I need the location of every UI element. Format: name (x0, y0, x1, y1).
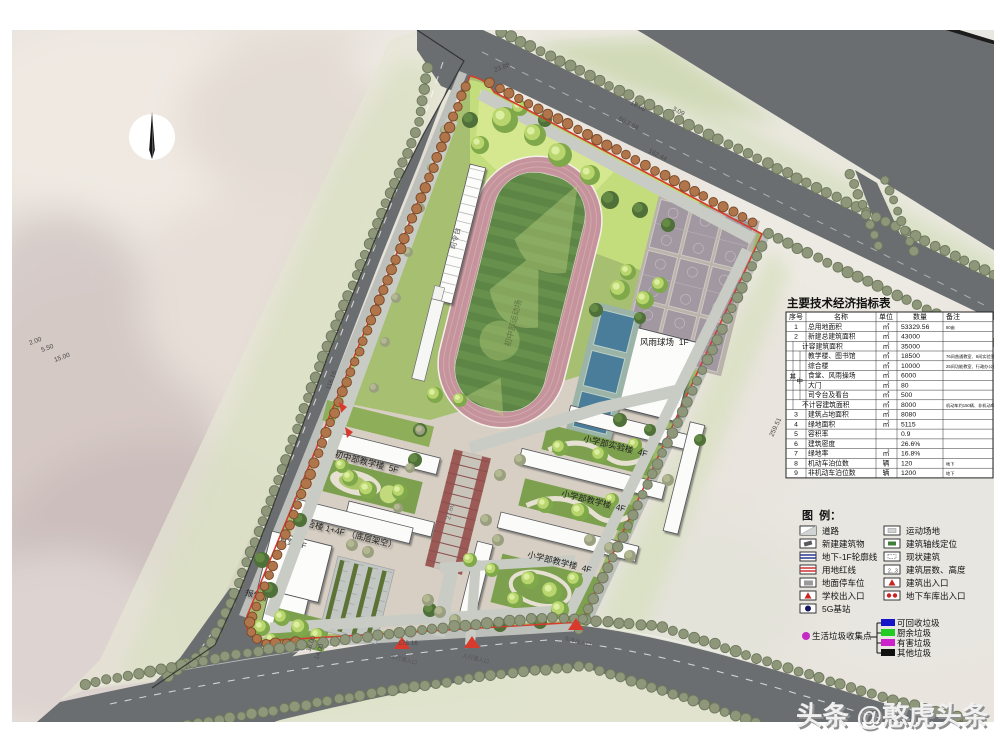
svg-text:其他垃圾: 其他垃圾 (897, 648, 932, 658)
svg-text:有害垃圾: 有害垃圾 (897, 638, 932, 648)
svg-text:名称: 名称 (834, 312, 848, 321)
svg-text:现状建筑: 现状建筑 (906, 552, 941, 562)
svg-text:3: 3 (794, 412, 798, 419)
svg-text:主要技术经济指标表: 主要技术经济指标表 (787, 296, 891, 310)
svg-text:7: 7 (794, 451, 798, 458)
svg-text:㎡: ㎡ (883, 322, 890, 331)
svg-text:新建建筑物: 新建建筑物 (822, 539, 865, 549)
svg-text:5: 5 (794, 431, 798, 438)
svg-text:地下: 地下 (946, 460, 954, 467)
svg-text:80亩: 80亩 (946, 324, 955, 331)
svg-text:㎡: ㎡ (883, 341, 890, 350)
svg-text:绿地面积: 绿地面积 (808, 419, 835, 428)
svg-text:容积率: 容积率 (808, 429, 829, 438)
svg-text:可回收垃圾: 可回收垃圾 (897, 618, 940, 628)
svg-text:地面停车位: 地面停车位 (822, 578, 865, 588)
svg-text:0.9: 0.9 (901, 431, 911, 438)
svg-text:2: 2 (794, 334, 798, 341)
svg-text:6: 6 (794, 441, 798, 448)
svg-text:㎡: ㎡ (883, 390, 890, 399)
svg-text:辆: 辆 (883, 468, 890, 477)
svg-text:1200: 1200 (901, 470, 916, 477)
svg-text:6000: 6000 (901, 373, 916, 380)
svg-text:43000: 43000 (901, 334, 920, 341)
svg-text:76间普通教室、8间实验室、1间报告厅: 76间普通教室、8间实验室、1间报告厅 (946, 353, 1000, 360)
svg-text:120: 120 (901, 460, 913, 467)
svg-text:18500: 18500 (901, 353, 920, 360)
svg-text:10000: 10000 (901, 363, 920, 370)
svg-text:不计容建筑面积: 不计容建筑面积 (802, 400, 850, 409)
svg-text:㎡: ㎡ (883, 449, 890, 458)
svg-text:备注: 备注 (946, 312, 960, 321)
svg-text:司令台及看台: 司令台及看台 (808, 390, 849, 399)
svg-text:地下-1F轮廓线: 地下-1F轮廓线 (822, 552, 878, 562)
svg-text:单位: 单位 (879, 312, 893, 321)
svg-text:教学楼、图书馆: 教学楼、图书馆 (808, 351, 856, 360)
svg-text:500: 500 (901, 392, 913, 399)
svg-text:计容建筑面积: 计容建筑面积 (802, 341, 843, 350)
svg-text:㎡: ㎡ (883, 371, 890, 380)
svg-text:辆: 辆 (883, 458, 890, 467)
svg-text:4: 4 (794, 421, 798, 428)
svg-text:运动场地: 运动场地 (906, 526, 941, 536)
svg-text:建筑层数、高度: 建筑层数、高度 (906, 565, 966, 575)
svg-text:16.8%: 16.8% (901, 451, 920, 458)
svg-text:学校出入口: 学校出入口 (822, 591, 865, 601)
svg-text:非机动车泊位数: 非机动车泊位数 (808, 468, 856, 477)
svg-text:建筑占地面积: 建筑占地面积 (808, 410, 849, 419)
svg-text:大门: 大门 (808, 380, 822, 389)
svg-text:其: 其 (790, 372, 797, 380)
svg-text:5G基站: 5G基站 (822, 604, 851, 614)
svg-text:序号: 序号 (789, 312, 803, 321)
svg-text:9: 9 (794, 470, 798, 477)
svg-text:8: 8 (794, 460, 798, 467)
svg-text:㎡: ㎡ (883, 410, 890, 419)
svg-text:数量: 数量 (913, 312, 927, 321)
svg-text:地下: 地下 (946, 470, 954, 477)
svg-text:机动车约150辆、非机动车约600辆: 机动车约150辆、非机动车约600辆 (946, 402, 1000, 409)
svg-text:㎡: ㎡ (883, 419, 890, 428)
svg-text:建筑密度: 建筑密度 (808, 439, 835, 448)
svg-text:建筑出入口: 建筑出入口 (906, 578, 949, 588)
svg-text:总用地面积: 总用地面积 (808, 322, 842, 331)
svg-text:80: 80 (901, 382, 909, 389)
svg-text:26.6%: 26.6% (901, 441, 920, 448)
svg-text:风雨球场 1F: 风雨球场 1F (640, 337, 689, 347)
svg-text:道路: 道路 (822, 526, 840, 536)
svg-text:35000: 35000 (901, 343, 920, 350)
svg-text:㎡: ㎡ (883, 361, 890, 370)
svg-text:㎡: ㎡ (883, 380, 890, 389)
svg-text:图 例：: 图 例： (802, 508, 841, 522)
svg-text:用地红线: 用地红线 (822, 565, 857, 575)
svg-text:建筑轴线定位: 建筑轴线定位 (906, 539, 958, 549)
svg-text:厨余垃圾: 厨余垃圾 (897, 628, 932, 638)
svg-text:地下车库出入口: 地下车库出入口 (906, 591, 966, 601)
svg-text:生活垃圾收集点: 生活垃圾收集点 (812, 631, 872, 641)
svg-text:㎡: ㎡ (883, 351, 890, 360)
svg-text:㎡: ㎡ (883, 332, 890, 341)
svg-text:综合楼: 综合楼 (808, 361, 829, 370)
svg-text:新建总建筑面积: 新建总建筑面积 (808, 332, 856, 341)
svg-text:1: 1 (794, 324, 798, 331)
svg-text:绿地率: 绿地率 (808, 449, 829, 458)
svg-text:25间功能教室、行政办公室: 25间功能教室、行政办公室 (946, 363, 997, 370)
svg-text:53329.56: 53329.56 (901, 324, 930, 331)
svg-text:5115: 5115 (901, 421, 916, 428)
svg-text:8080: 8080 (901, 412, 916, 419)
svg-text:2...3: 2...3 (888, 569, 898, 575)
svg-text:机动车泊位数: 机动车泊位数 (808, 458, 849, 467)
svg-text:头条 @憨虎头条: 头条 @憨虎头条 (796, 701, 989, 731)
svg-text:中: 中 (797, 376, 804, 385)
svg-text:㎡: ㎡ (883, 400, 890, 409)
svg-text:178.16: 178.16 (398, 640, 418, 647)
svg-text:8000: 8000 (901, 402, 916, 409)
svg-text:食堂、风雨操场: 食堂、风雨操场 (808, 371, 856, 380)
